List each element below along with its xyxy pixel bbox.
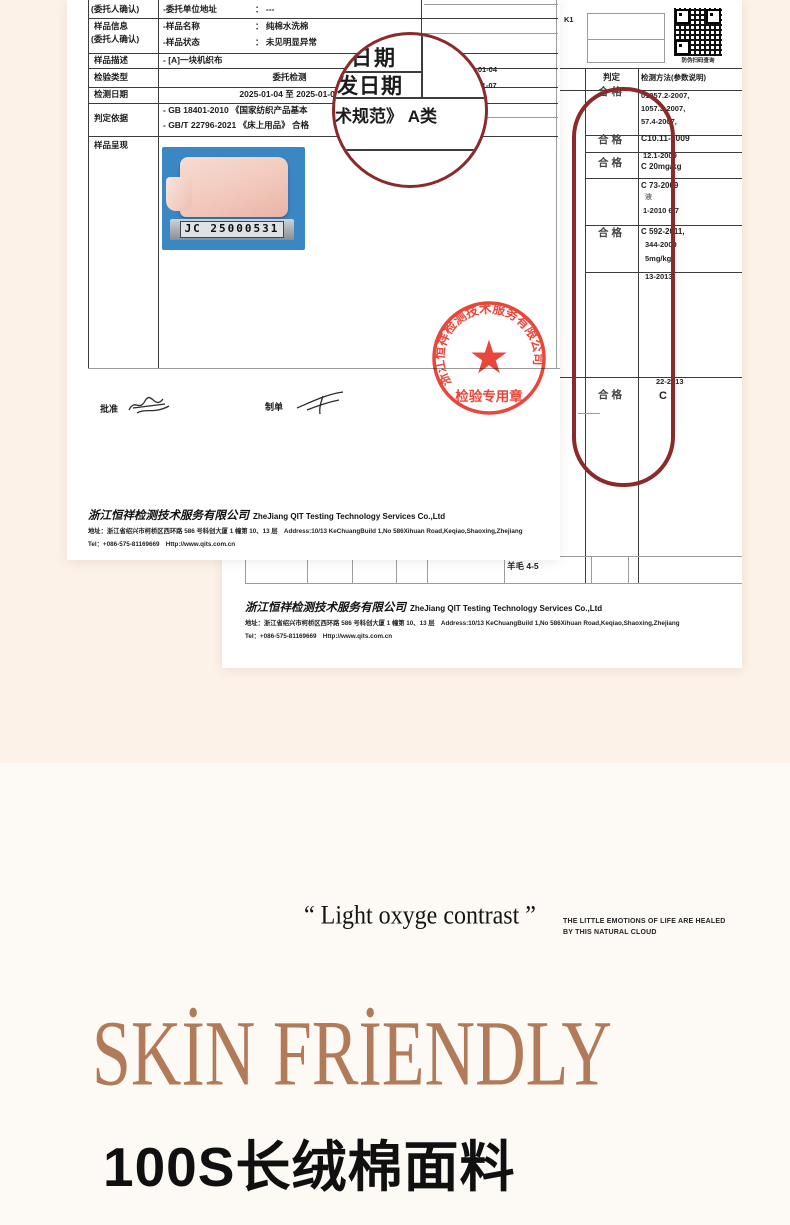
- magnified-text: 术规范》 A类: [335, 107, 437, 127]
- row-field: -样品名称: [163, 22, 200, 32]
- row-value: - [A]一块机织布: [163, 56, 223, 66]
- stamp-label: 检验专用章: [455, 388, 523, 404]
- grid-line: [591, 556, 592, 583]
- prepare-label: 制单: [265, 402, 283, 412]
- lab-name-cn: 浙江恒祥检测技术服务有限公司: [245, 602, 406, 614]
- grid-line: [556, 0, 557, 368]
- hero-tagline-line2: BY THIS NATURAL CLOUD: [563, 927, 726, 938]
- approve-signature: [125, 392, 177, 418]
- row-value: ： 未见明显异常: [255, 38, 317, 48]
- qr-eye-icon: [675, 40, 690, 55]
- hero-tagline-line1: THE LITTLE EMOTIONS OF LIFE ARE HEALED: [563, 916, 726, 927]
- row-field: -委托单位地址: [163, 5, 217, 15]
- qr-eye-icon: [706, 9, 721, 24]
- row-label: 检测日期: [94, 90, 128, 100]
- sample-id-plate: JC 25000531: [170, 219, 294, 240]
- row-label: 样品描述: [94, 56, 128, 66]
- grid-line: [88, 53, 558, 54]
- grid-line: [88, 0, 89, 368]
- grid-line: [88, 136, 558, 137]
- magnifier-circle: 日期 发日期 术规范》 A类: [332, 32, 488, 188]
- lab-address: 地址：浙江省绍兴市柯桥区西环路 586 号科创大厦 1 幢第 10、13 层 A…: [88, 528, 523, 535]
- fabric-fold: [166, 177, 192, 211]
- serial-box-divider: [587, 39, 665, 40]
- magnified-grid-line: [335, 97, 485, 99]
- grid-line: [504, 556, 505, 583]
- approve-label: 批准: [100, 404, 118, 414]
- sample-id-text: JC 25000531: [180, 221, 285, 237]
- grid-line: [560, 68, 742, 69]
- qr-caption: 防伪扫码查询: [666, 58, 730, 64]
- magnified-text: 发日期: [337, 75, 403, 99]
- inspection-stamp: 浙江恒祥检测技术服务有限公司 ★ 检验专用章: [430, 299, 548, 417]
- lab-footer: 浙江恒祥检测技术服务有限公司ZheJiang QIT Testing Techn…: [245, 598, 602, 616]
- test-report-page-1: (委托人确认) -委托单位地址 ： --- 样品信息 (委托人确认) -样品名称…: [67, 0, 560, 560]
- row-label: (委托人确认): [91, 35, 139, 45]
- lab-name-en: ZheJiang QIT Testing Technology Services…: [253, 512, 445, 521]
- lab-footer: 浙江恒祥检测技术服务有限公司ZheJiang QIT Testing Techn…: [88, 506, 445, 524]
- row-value: - GB/T 22796-2021 《床上用品》 合格: [163, 121, 309, 131]
- row-label: (委托人确认): [91, 5, 139, 15]
- lab-name-cn: 浙江恒祥检测技术服务有限公司: [88, 510, 249, 522]
- magnified-grid-line: [335, 149, 485, 151]
- row-field: -样品状态: [163, 38, 200, 48]
- bottom-row-cell: 羊毛 4-5: [507, 562, 539, 572]
- grid-line: [424, 33, 558, 34]
- fabric-sample: [180, 157, 288, 217]
- magnified-grid-line: [421, 35, 423, 97]
- prepare-signature: [293, 388, 347, 416]
- row-value: ： ---: [255, 5, 274, 15]
- col-header-method: 检测方法(参数说明): [641, 74, 706, 83]
- hero-tagline: THE LITTLE EMOTIONS OF LIFE ARE HEALED B…: [563, 916, 726, 938]
- magnified-text: 日期: [351, 47, 397, 71]
- qr-code: [674, 8, 722, 56]
- grid-line: [427, 556, 428, 583]
- grid-line: [352, 556, 353, 583]
- sample-photo: JC 25000531: [162, 147, 305, 250]
- row-label: 检验类型: [94, 73, 128, 83]
- grid-line: [628, 556, 629, 583]
- serial-box: [587, 13, 665, 63]
- magnified-grid-line: [335, 71, 421, 73]
- hero-title: SKİN FRİENDLY: [92, 1002, 732, 1108]
- grid-line: [158, 0, 159, 368]
- row-label: 样品信息: [94, 22, 128, 32]
- col-header-verdict: 判定: [585, 73, 638, 83]
- page: K1 防伪扫码查询 判定 检测方法(参数说明) 合格 合格 合格 合格 合格 0…: [0, 0, 790, 1225]
- grid-line: [88, 18, 558, 19]
- hero-quote: “ Light oxyge contrast ”: [300, 902, 540, 931]
- lab-name-en: ZheJiang QIT Testing Technology Services…: [410, 604, 602, 613]
- lab-tel: Tel：+086-575-81169669 Http://www.qits.co…: [245, 633, 392, 640]
- row-value: ： 纯棉水洗棉: [255, 22, 308, 32]
- stamp-star-icon: ★: [468, 331, 509, 383]
- qr-eye-icon: [675, 9, 690, 24]
- grid-line: [245, 583, 742, 584]
- row-label: 样品呈现: [94, 141, 128, 151]
- hero-subtitle: 100S长绒棉面料: [103, 1122, 515, 1202]
- row-value: - GB 18401-2010 《国家纺织产品基本: [163, 106, 308, 116]
- magnifier-capsule: [572, 87, 675, 487]
- lab-tel: Tel：+086-575-81169669 Http://www.qits.co…: [88, 541, 235, 548]
- lab-address: 地址：浙江省绍兴市柯桥区西环路 586 号科创大厦 1 幢第 10、13 层 A…: [245, 620, 680, 627]
- grid-line: [424, 4, 558, 5]
- grid-line: [396, 556, 397, 583]
- report-serial: K1: [564, 16, 574, 25]
- row-label: 判定依据: [94, 114, 128, 124]
- grid-line: [245, 556, 246, 583]
- grid-line: [307, 556, 308, 583]
